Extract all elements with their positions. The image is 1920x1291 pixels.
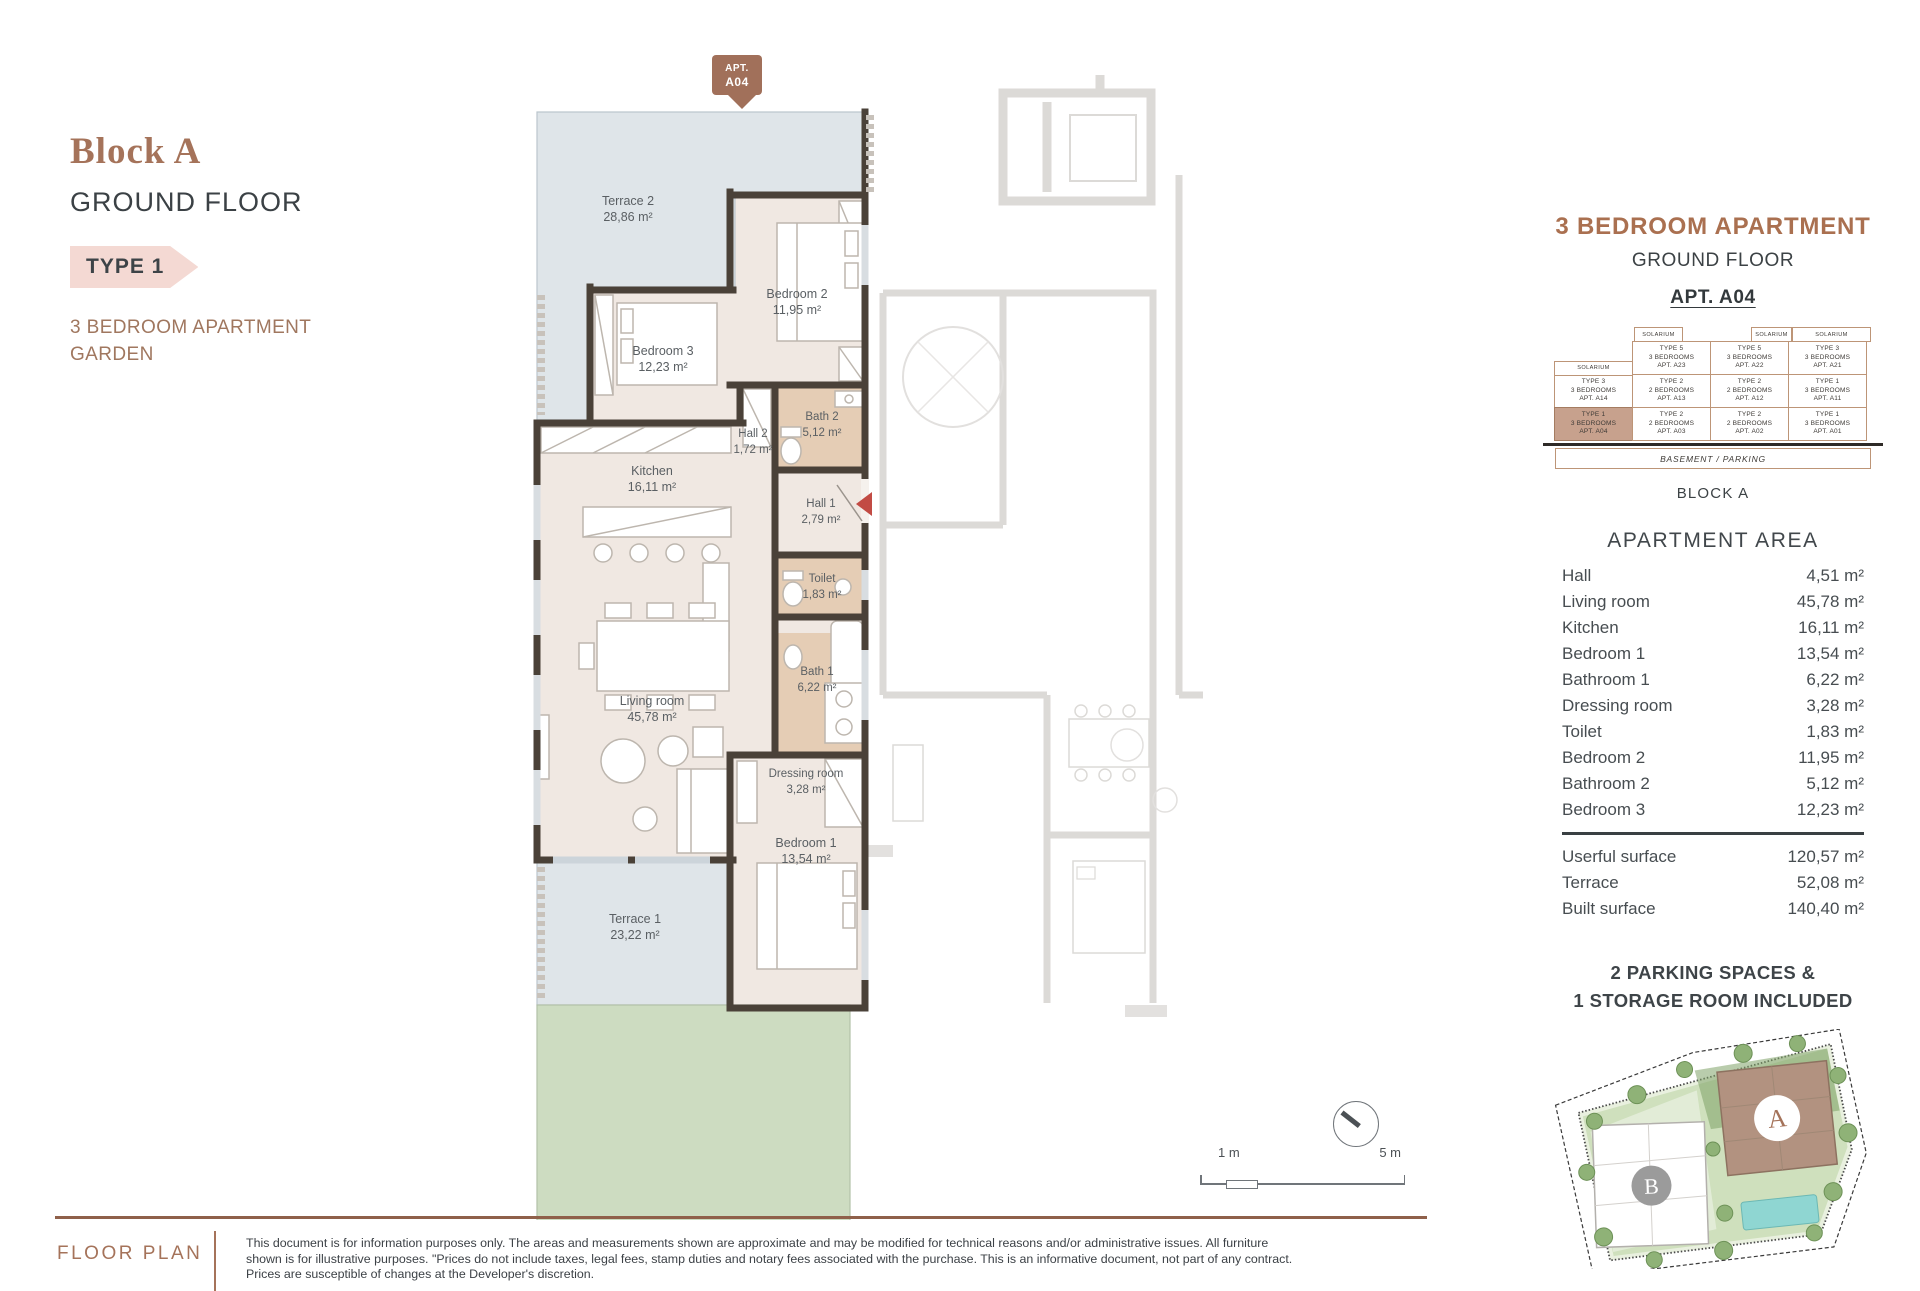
area-row-value: 3,28 m² <box>1806 696 1864 716</box>
stack-cell: TYPE 33 BEDROOMSAPT. A21 <box>1788 341 1867 375</box>
area-row: Bathroom 25,12 m² <box>1528 771 1898 797</box>
area-row-label: Toilet <box>1562 722 1602 742</box>
neighbour-apartment <box>867 75 1203 1017</box>
building-stack-diagram: SOLARIUMSOLARIUMSOLARIUMSOLARIUMTYPE 53 … <box>1555 327 1871 469</box>
solarium-box: SOLARIUM <box>1792 327 1871 342</box>
solarium-box: SOLARIUM <box>1554 361 1633 376</box>
site-block-b-label: B <box>1644 1173 1660 1198</box>
block-title: Block A <box>70 130 400 173</box>
solarium-row: SOLARIUMSOLARIUMSOLARIUM <box>1555 327 1871 342</box>
parking-note: 2 PARKING SPACES & 1 STORAGE ROOM INCLUD… <box>1528 959 1898 1015</box>
area-row: Bedroom 113,54 m² <box>1528 641 1898 667</box>
floor-title: GROUND FLOOR <box>70 187 400 218</box>
area-row-value: 12,23 m² <box>1797 800 1864 820</box>
area-row: Bathroom 16,22 m² <box>1528 667 1898 693</box>
subtitle-line-2: GARDEN <box>70 341 400 368</box>
stack-cell: TYPE 53 BEDROOMSAPT. A23 <box>1632 341 1711 375</box>
area-row: Bedroom 312,23 m² <box>1528 797 1898 823</box>
stack-cell: TYPE 22 BEDROOMSAPT. A13 <box>1632 374 1711 408</box>
total-row: Terrace52,08 m² <box>1528 870 1898 896</box>
floor-row: TYPE 13 BEDROOMSAPT. A04TYPE 22 BEDROOMS… <box>1555 408 1871 441</box>
area-row: Dressing room3,28 m² <box>1528 693 1898 719</box>
solarium-box: SOLARIUM <box>1751 327 1792 342</box>
stack-cell: TYPE 33 BEDROOMSAPT. A14 <box>1554 374 1633 408</box>
apartment-subtitle: 3 BEDROOM APARTMENT GARDEN <box>70 314 400 368</box>
site-plan: B A <box>1553 1029 1873 1269</box>
scale-bar: 1 m 5 m <box>1200 1145 1405 1195</box>
area-table: Hall4,51 m²Living room45,78 m²Kitchen16,… <box>1528 563 1898 823</box>
total-row-label: Built surface <box>1562 899 1656 919</box>
area-row-value: 16,11 m² <box>1798 618 1864 638</box>
total-row-value: 140,40 m² <box>1787 899 1864 919</box>
total-row-value: 120,57 m² <box>1787 847 1864 867</box>
area-row: Bedroom 211,95 m² <box>1528 745 1898 771</box>
apartment-number: APT. A04 <box>1528 287 1898 309</box>
area-row-label: Hall <box>1562 566 1591 586</box>
area-row-label: Bathroom 2 <box>1562 774 1650 794</box>
panel-subtitle: GROUND FLOOR <box>1528 250 1898 272</box>
right-panel: 3 BEDROOM APARTMENT GROUND FLOOR APT. A0… <box>1528 213 1898 1269</box>
block-label: BLOCK A <box>1528 485 1898 502</box>
stack-cell: TYPE 22 BEDROOMSAPT. A12 <box>1710 374 1789 408</box>
area-row-value: 5,12 m² <box>1806 774 1864 794</box>
area-row-value: 13,54 m² <box>1797 644 1864 664</box>
floor-plan: APT. A04 Terrace 228,86 m²Bedroom 211,95… <box>525 55 1205 1220</box>
floor-row: SOLARIUMTYPE 53 BEDROOMSAPT. A23TYPE 53 … <box>1555 342 1871 375</box>
area-row-label: Bedroom 3 <box>1562 800 1645 820</box>
garden-area <box>537 1005 850 1220</box>
disclaimer-line-1: This document is for information purpose… <box>246 1236 1436 1252</box>
area-row-label: Bedroom 1 <box>1562 644 1645 664</box>
scale-label-5m: 5 m <box>1379 1145 1401 1160</box>
area-row-value: 45,78 m² <box>1797 592 1864 612</box>
parking-line-2: 1 STORAGE ROOM INCLUDED <box>1528 987 1898 1015</box>
stack-cell: TYPE 13 BEDROOMSAPT. A11 <box>1788 374 1867 408</box>
area-row-label: Bedroom 2 <box>1562 748 1645 768</box>
footer-rule <box>55 1216 1427 1219</box>
apartment-area-title: APARTMENT AREA <box>1528 529 1898 553</box>
footer-label: FLOOR PLAN <box>57 1243 202 1265</box>
panel-title: 3 BEDROOM APARTMENT <box>1528 213 1898 241</box>
plan-header: Block A GROUND FLOOR TYPE 1 3 BEDROOM AP… <box>70 130 400 368</box>
ground-line <box>1543 443 1883 446</box>
parking-line-1: 2 PARKING SPACES & <box>1528 959 1898 987</box>
total-row: Built surface140,40 m² <box>1528 896 1898 922</box>
total-row-label: Userful surface <box>1562 847 1676 867</box>
stack-cell: TYPE 22 BEDROOMSAPT. A02 <box>1710 407 1789 441</box>
solarium-box: SOLARIUM <box>1634 327 1683 342</box>
total-row-value: 52,08 m² <box>1797 873 1864 893</box>
pin-line-2: A04 <box>725 75 749 89</box>
type-tag: TYPE 1 <box>70 246 198 288</box>
footer-divider <box>214 1231 216 1291</box>
subtitle-line-1: 3 BEDROOM APARTMENT <box>70 314 400 341</box>
area-row: Kitchen16,11 m² <box>1528 615 1898 641</box>
area-row-label: Dressing room <box>1562 696 1673 716</box>
area-row: Toilet1,83 m² <box>1528 719 1898 745</box>
total-row-label: Terrace <box>1562 873 1619 893</box>
floor-row: TYPE 33 BEDROOMSAPT. A14TYPE 22 BEDROOMS… <box>1555 375 1871 408</box>
disclaimer: This document is for information purpose… <box>246 1236 1436 1283</box>
area-row-value: 11,95 m² <box>1798 748 1864 768</box>
scale-label-1m: 1 m <box>1218 1145 1240 1160</box>
empty-cell: SOLARIUM <box>1554 341 1633 375</box>
stack-cell: TYPE 22 BEDROOMSAPT. A03 <box>1632 407 1711 441</box>
stack-cell: TYPE 13 BEDROOMSAPT. A04 <box>1554 407 1633 441</box>
area-row: Hall4,51 m² <box>1528 563 1898 589</box>
area-row-label: Living room <box>1562 592 1650 612</box>
apartment-pin: APT. A04 <box>712 55 762 109</box>
totals-table: Userful surface120,57 m²Terrace52,08 m²B… <box>1528 844 1898 922</box>
disclaimer-line-3: Prices are susceptible of changes at the… <box>246 1267 1436 1283</box>
stack-cell: TYPE 53 BEDROOMSAPT. A22 <box>1710 341 1789 375</box>
area-row: Living room45,78 m² <box>1528 589 1898 615</box>
area-row-value: 1,83 m² <box>1806 722 1864 742</box>
area-row-label: Kitchen <box>1562 618 1619 638</box>
pin-line-1: APT. <box>725 63 749 74</box>
totals-divider <box>1562 832 1864 835</box>
floor-plan-svg: APT. A04 Terrace 228,86 m²Bedroom 211,95… <box>525 55 1205 1220</box>
disclaimer-line-2: shown is for illustrative purposes. "Pri… <box>246 1252 1436 1268</box>
basement-cell: BASEMENT / PARKING <box>1555 448 1871 469</box>
north-compass-icon <box>1333 1101 1379 1147</box>
area-row-label: Bathroom 1 <box>1562 670 1650 690</box>
total-row: Userful surface120,57 m² <box>1528 844 1898 870</box>
area-row-value: 4,51 m² <box>1806 566 1864 586</box>
area-row-value: 6,22 m² <box>1806 670 1864 690</box>
site-block-a-label: A <box>1766 1103 1788 1134</box>
stack-cell: TYPE 13 BEDROOMSAPT. A01 <box>1788 407 1867 441</box>
